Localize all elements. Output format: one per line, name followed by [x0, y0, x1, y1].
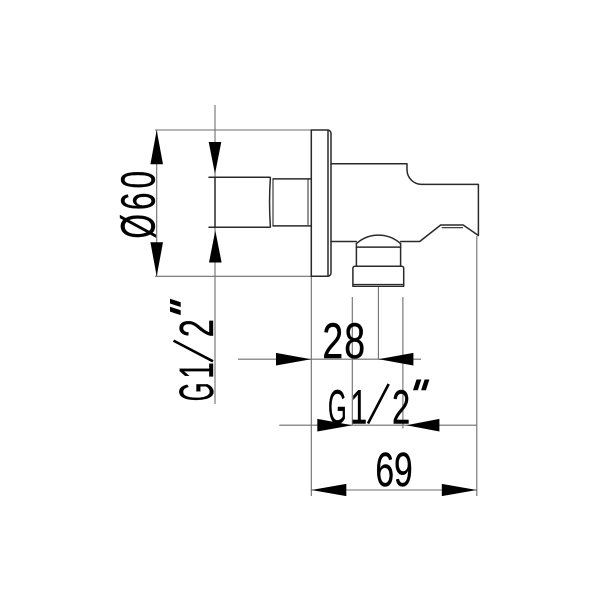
svg-text:2: 2 — [170, 319, 224, 337]
svg-text:G: G — [171, 383, 224, 402]
svg-text:1: 1 — [171, 362, 224, 379]
svg-text:1: 1 — [351, 381, 368, 434]
svg-text:28: 28 — [322, 314, 366, 369]
svg-text:69: 69 — [375, 442, 412, 496]
svg-text:G: G — [328, 382, 347, 435]
svg-text:Ø60: Ø60 — [111, 167, 165, 239]
svg-text:2: 2 — [392, 380, 410, 434]
